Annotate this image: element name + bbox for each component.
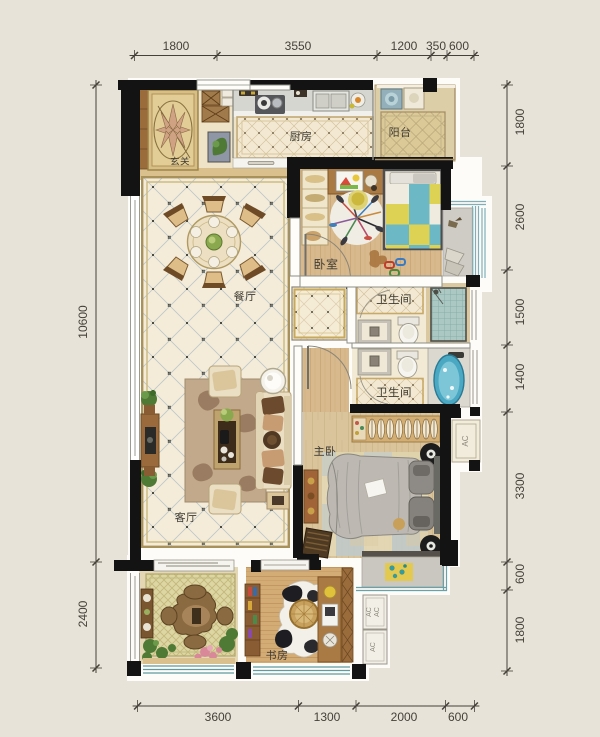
svg-text:600: 600 (448, 710, 468, 724)
svg-text:1800: 1800 (513, 108, 527, 135)
svg-text:600: 600 (449, 39, 469, 53)
svg-text:AC: AC (366, 607, 373, 617)
svg-text:2000: 2000 (391, 710, 418, 724)
svg-text:2400: 2400 (76, 600, 90, 627)
svg-text:350: 350 (426, 39, 446, 53)
svg-text:1800: 1800 (163, 39, 190, 53)
svg-text:1500: 1500 (513, 298, 527, 325)
svg-text:3550: 3550 (285, 39, 312, 53)
svg-text:1200: 1200 (391, 39, 418, 53)
svg-text:AC: AC (461, 435, 470, 446)
svg-text:1800: 1800 (513, 616, 527, 643)
svg-text:600: 600 (513, 564, 527, 584)
svg-text:2600: 2600 (513, 203, 527, 230)
svg-text:AC: AC (374, 607, 381, 617)
svg-text:1300: 1300 (314, 710, 341, 724)
svg-text:3300: 3300 (513, 472, 527, 499)
svg-text:3600: 3600 (205, 710, 232, 724)
svg-text:10600: 10600 (76, 305, 90, 339)
svg-text:AC: AC (370, 642, 377, 652)
svg-text:1400: 1400 (513, 363, 527, 390)
